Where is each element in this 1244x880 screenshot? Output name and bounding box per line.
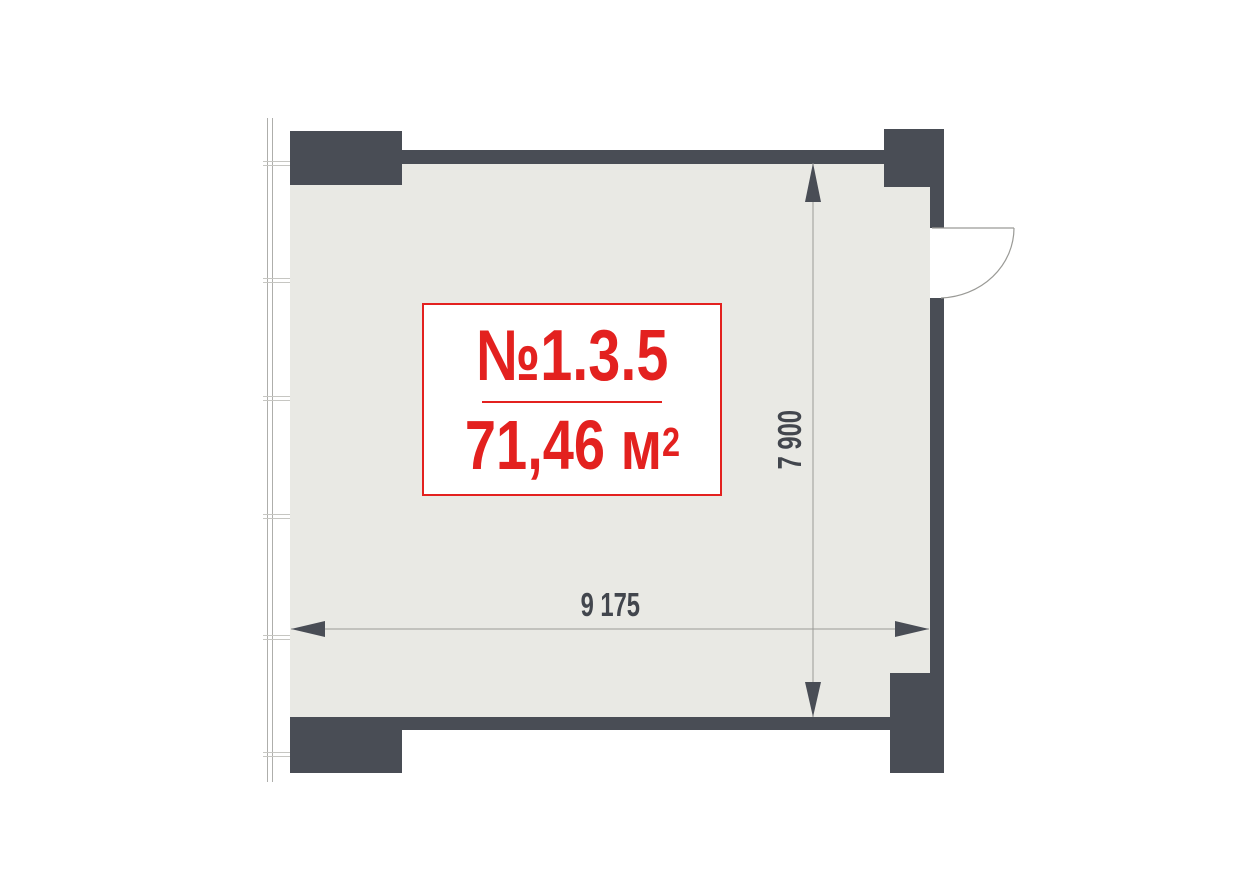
width-dimension-label: 9 175 [410,588,810,621]
width-dimension-value: 9 175 [580,588,639,621]
window-mullion-tick [263,396,290,401]
window-mullion-tick [263,752,290,757]
pillar-bottom-right [890,673,944,773]
unit-number: №1.3.5 [452,323,692,389]
height-dimension-value: 7 900 [773,410,806,469]
pillar-top-left [290,131,402,185]
right-wall-upper [930,150,944,228]
door-swing-icon [932,228,1014,298]
pillar-bottom-left [290,717,402,773]
window-mullion-tick [263,635,290,640]
window-mullion-tick [263,514,290,519]
unit-label-divider [482,401,662,403]
top-wall [402,150,884,164]
window-mullion-tick [263,278,290,283]
bottom-wall [402,717,890,730]
window-wall-line [267,118,268,782]
unit-area: 71,46 м2 [438,413,707,477]
floor-plan: 9 175 7 900 №1.3.5 71,46 м2 [0,0,1244,880]
unit-area-exponent: 2 [662,419,680,465]
unit-label-box: №1.3.5 71,46 м2 [422,303,722,496]
window-wall-line [272,118,273,782]
window-mullion-tick [263,161,290,166]
